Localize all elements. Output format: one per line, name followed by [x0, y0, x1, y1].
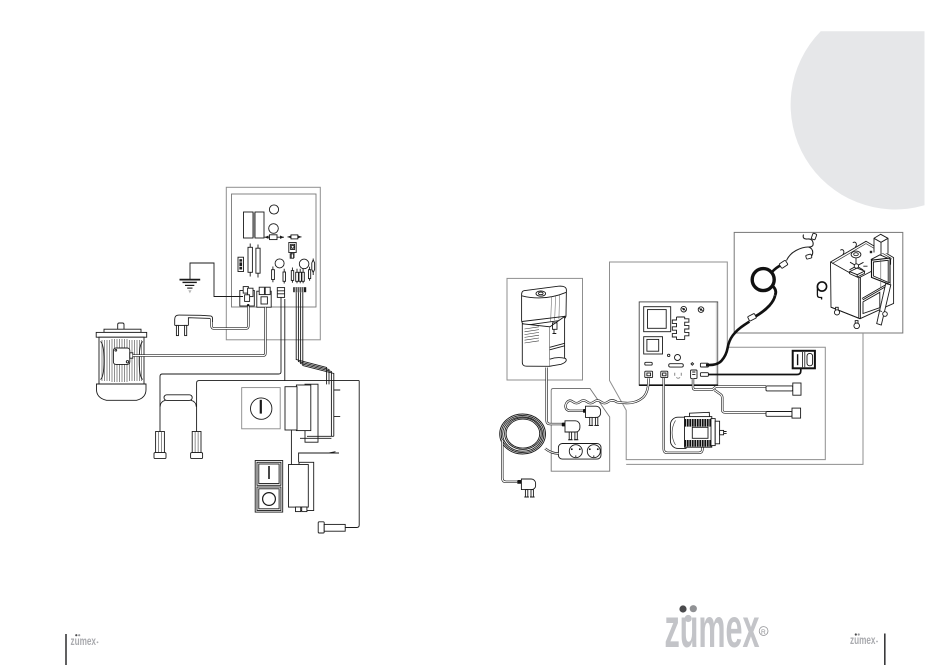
svg-text:R: R: [761, 629, 766, 636]
svg-text:zumex: zumex: [850, 633, 876, 647]
svg-text:zumex: zumex: [665, 596, 760, 659]
svg-text:zumex: zumex: [71, 634, 97, 648]
